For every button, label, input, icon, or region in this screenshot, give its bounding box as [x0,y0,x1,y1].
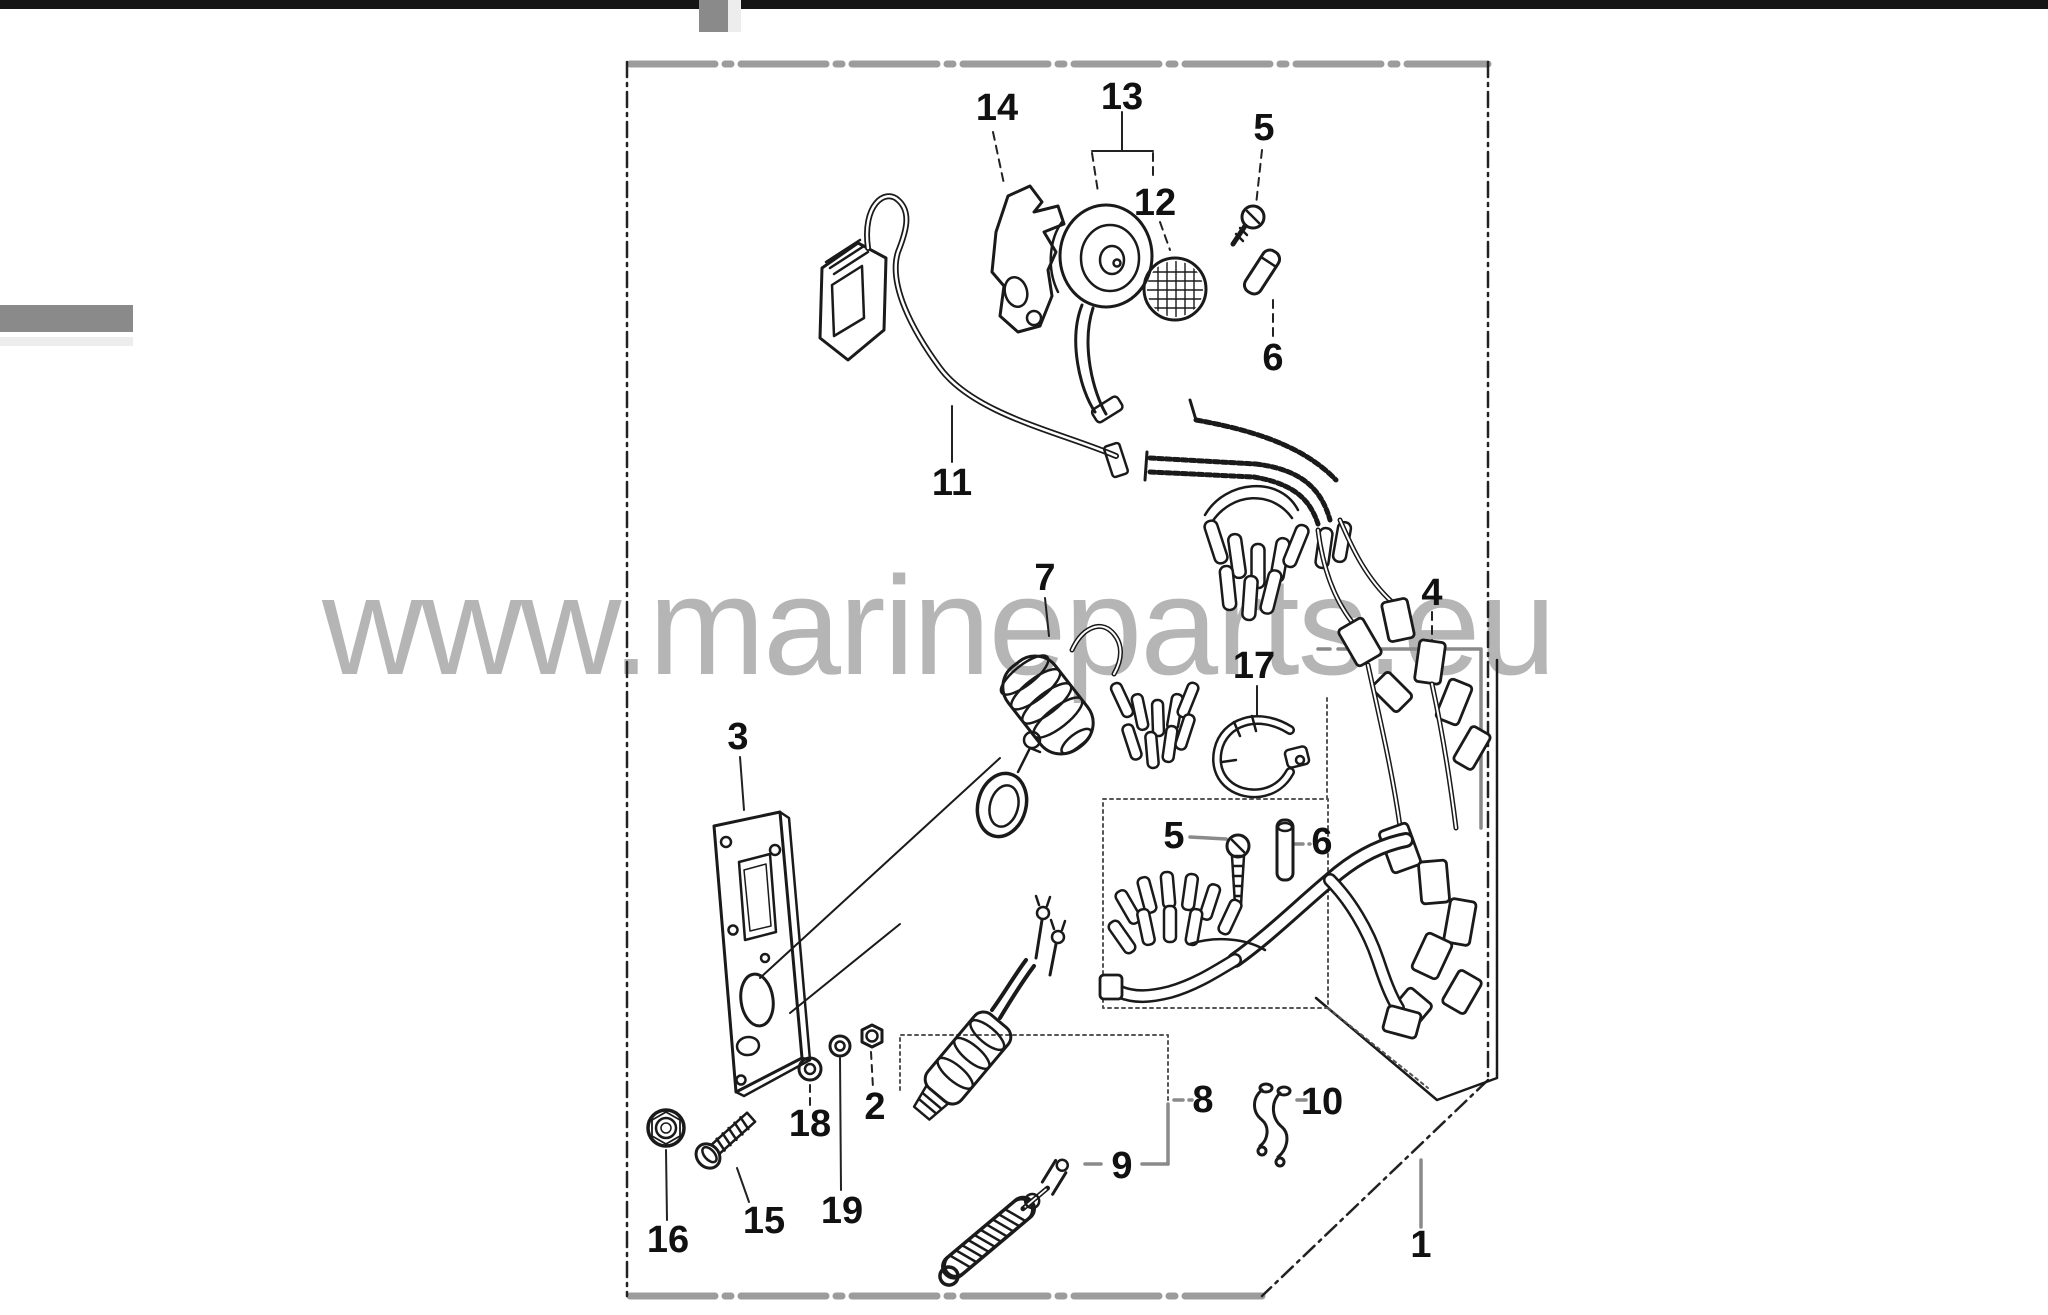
part-callout-8-17: 8 [1192,1081,1213,1119]
part-callout-14-0: 14 [976,89,1018,127]
part-callout-18-12: 18 [789,1105,831,1143]
part-callout-15-15: 15 [743,1202,785,1240]
part-callout-9-18: 9 [1111,1147,1132,1185]
part-callout-4-8: 4 [1421,574,1442,612]
part-callout-6-11: 6 [1311,823,1332,861]
part-callout-11-5: 11 [932,464,972,502]
part-callout-12-2: 12 [1134,184,1176,222]
part-callout-17-7: 17 [1233,647,1275,685]
part-callout-10-19: 10 [1301,1083,1343,1121]
part-callout-7-6: 7 [1034,559,1055,597]
part-callout-5-10: 5 [1163,817,1184,855]
part-callout-1-20: 1 [1410,1226,1431,1264]
part-callout-13-1: 13 [1101,78,1143,116]
parts-diagram-page: www.marineparts.eu [0,0,2048,1315]
part-callouts: 1413125611717435618219151689101 [0,0,2048,1315]
part-callout-3-9: 3 [727,718,748,756]
part-callout-5-3: 5 [1253,109,1274,147]
part-callout-2-13: 2 [864,1088,885,1126]
part-callout-6-4: 6 [1262,339,1283,377]
part-callout-16-16: 16 [647,1221,689,1259]
part-callout-19-14: 19 [821,1192,863,1230]
